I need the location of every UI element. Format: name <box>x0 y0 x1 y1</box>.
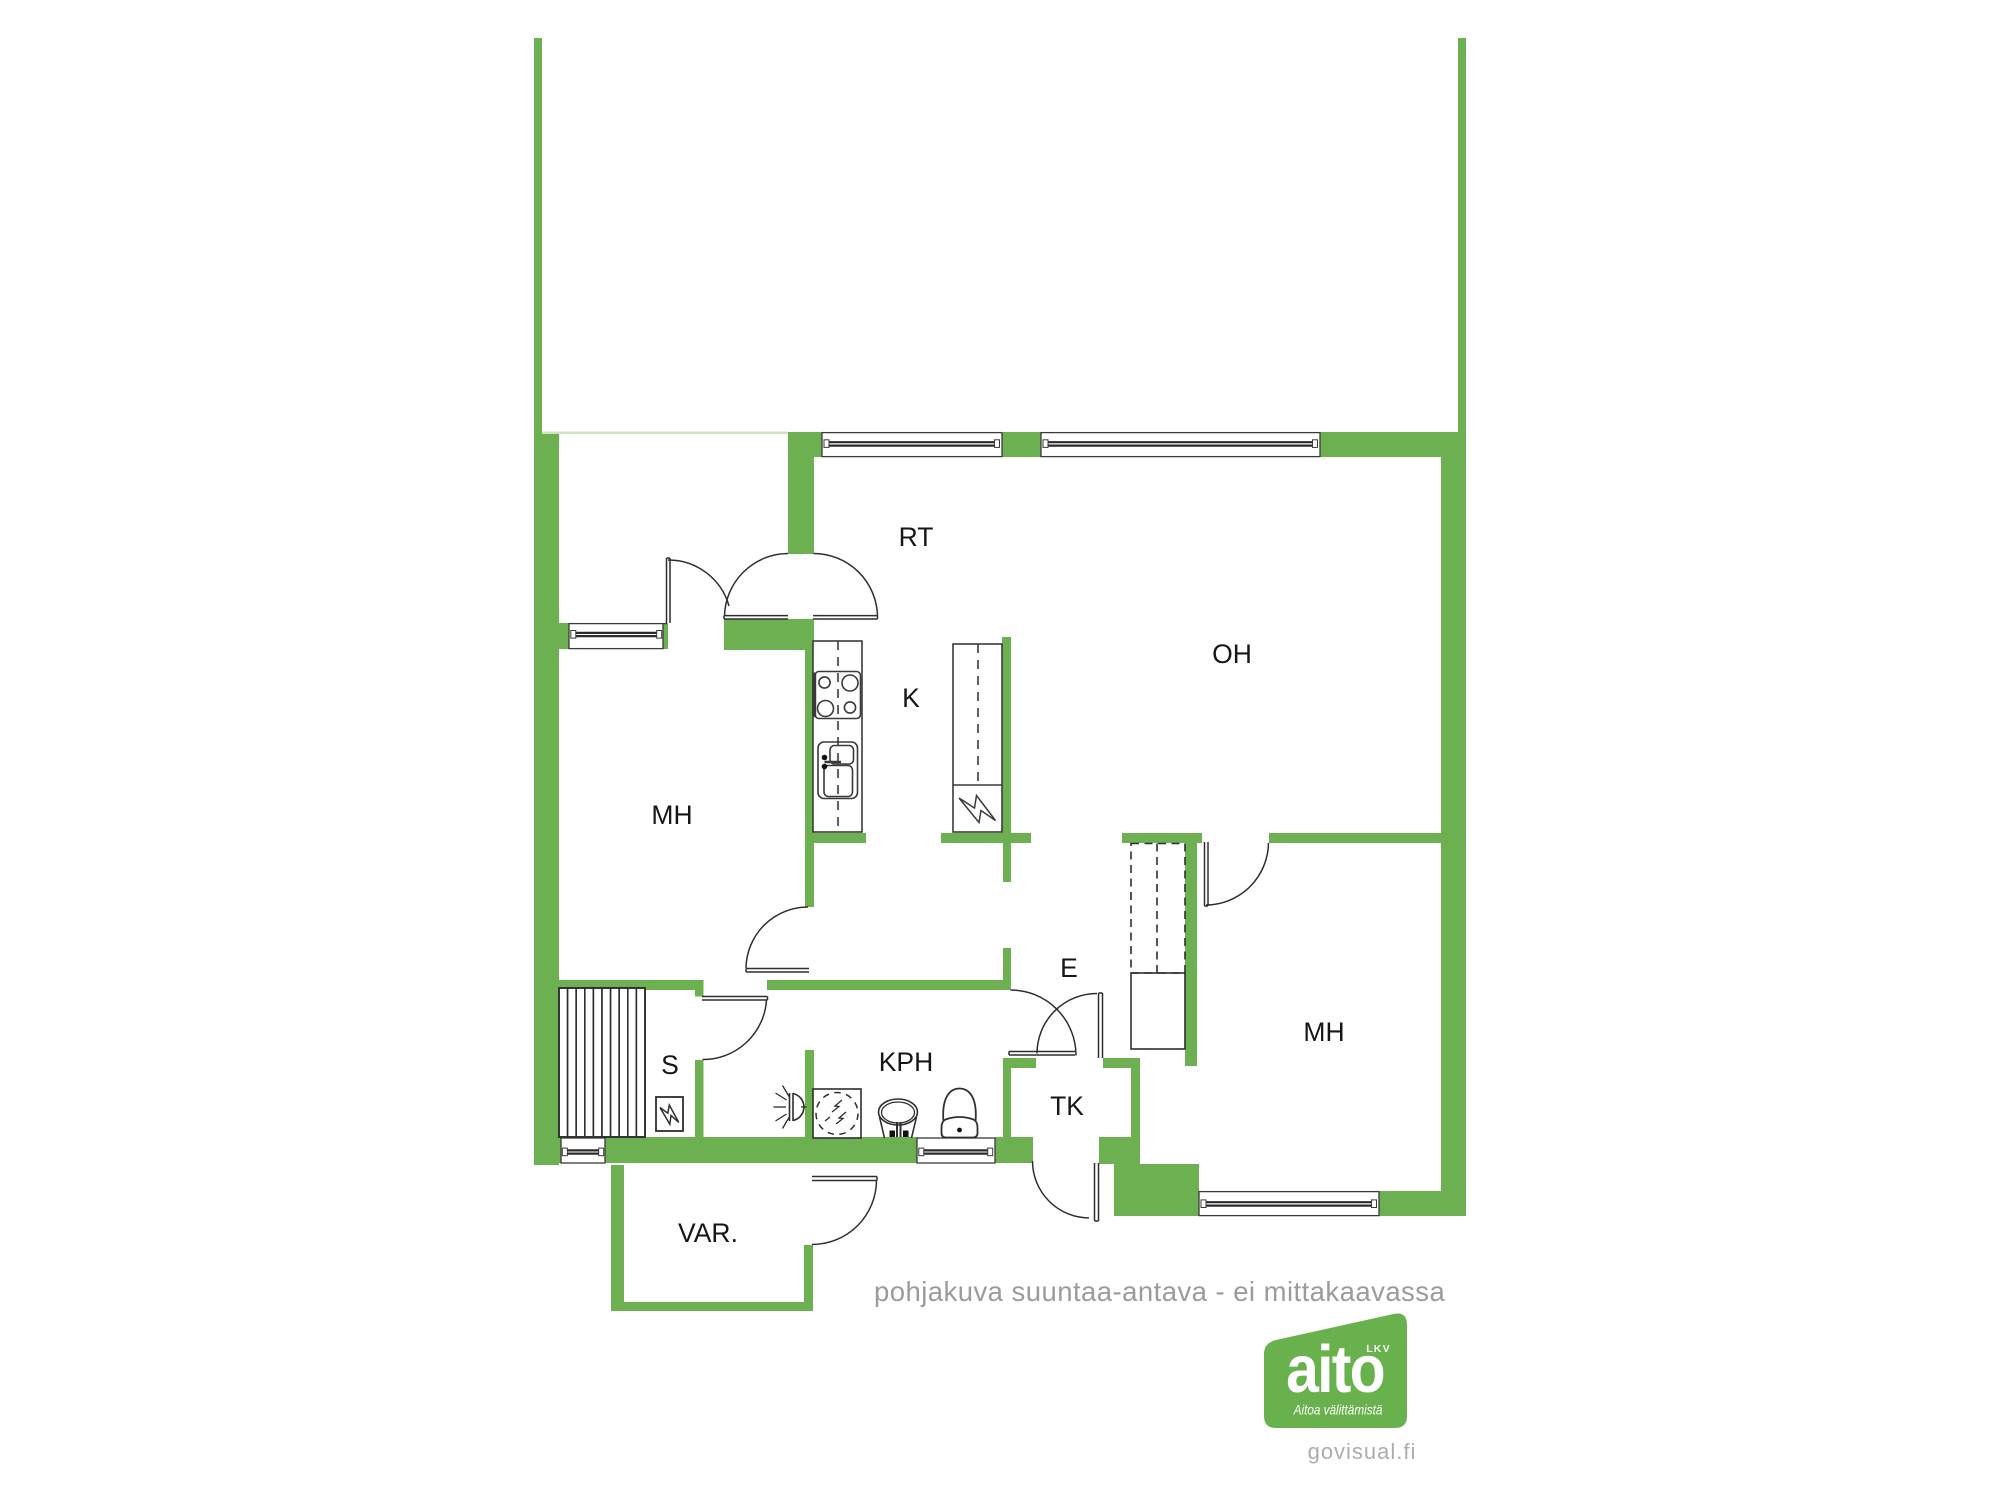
svg-text:TK: TK <box>1050 1091 1084 1121</box>
svg-text:MH: MH <box>651 800 692 830</box>
svg-text:pohjakuva suuntaa-antava - ei: pohjakuva suuntaa-antava - ei mittakaava… <box>874 1276 1445 1307</box>
svg-text:KPH: KPH <box>879 1047 934 1077</box>
svg-text:RT: RT <box>899 522 934 552</box>
svg-text:govisual.fi: govisual.fi <box>1308 1439 1417 1464</box>
svg-text:MH: MH <box>1303 1017 1344 1047</box>
svg-text:LKV: LKV <box>1366 1343 1391 1355</box>
svg-text:Aitoa välittämistä: Aitoa välittämistä <box>1293 1402 1383 1418</box>
svg-text:S: S <box>661 1050 679 1080</box>
svg-text:OH: OH <box>1212 639 1252 669</box>
svg-text:VAR.: VAR. <box>678 1218 738 1248</box>
svg-text:E: E <box>1060 953 1078 983</box>
svg-text:K: K <box>902 683 920 713</box>
